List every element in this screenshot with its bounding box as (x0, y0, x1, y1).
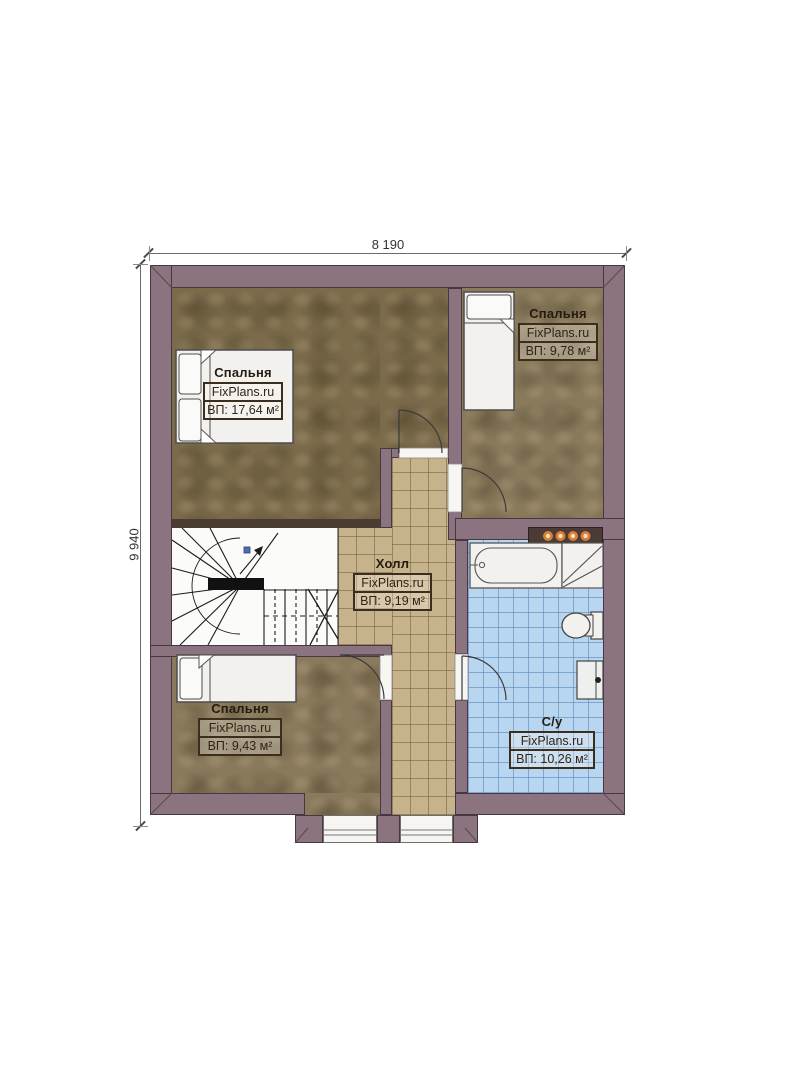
wall-bottom-left (150, 793, 305, 815)
room-info-box: FixPlans.ru ВП: 9,78 м² (518, 323, 598, 361)
bedroom-1-floor-ext (380, 288, 448, 448)
wall-hall-left-lower (380, 700, 392, 815)
room-label-bedroom-1: Спальня FixPlans.ru ВП: 17,64 м² (203, 365, 283, 420)
wall-left (150, 265, 172, 815)
dim-top-ext-right (626, 246, 627, 261)
door-bathroom-opening (455, 654, 468, 700)
room-name: С/у (509, 714, 595, 729)
wall-bedroom1-stairs (172, 519, 380, 528)
door-bedroom3-opening (380, 655, 392, 700)
room-label-bathroom: С/у FixPlans.ru ВП: 10,26 м² (509, 714, 595, 769)
bay-window-right (400, 815, 453, 843)
room-info-box: FixPlans.ru ВП: 9,43 м² (198, 718, 282, 756)
wall-hall-left-upper (380, 448, 392, 528)
wall-top (150, 265, 625, 288)
brand-label: FixPlans.ru (205, 384, 281, 402)
room-info-box: FixPlans.ru ВП: 9,19 м² (353, 573, 432, 611)
bay-pier-right (453, 815, 478, 843)
wall-bottom-right (455, 793, 625, 815)
bay-pier-left (295, 815, 323, 843)
room-info-box: FixPlans.ru ВП: 17,64 м² (203, 382, 283, 420)
room-label-hall: Холл FixPlans.ru ВП: 9,19 м² (353, 556, 432, 611)
dim-left-ext-bottom (133, 826, 148, 827)
wall-stairs-bedroom3 (150, 645, 392, 657)
brand-label: FixPlans.ru (355, 575, 430, 593)
room-name: Спальня (198, 701, 282, 716)
wall-right (603, 265, 625, 815)
stairs-area (172, 528, 338, 645)
hall-floor-column (392, 448, 455, 815)
bay-window-left (323, 815, 377, 843)
room-area: ВП: 9,43 м² (200, 738, 280, 754)
bay-pier-middle (377, 815, 400, 843)
room-area: ВП: 9,19 м² (355, 593, 430, 609)
brand-label: FixPlans.ru (511, 733, 593, 751)
room-area: ВП: 17,64 м² (205, 402, 281, 418)
bathroom-lights-strip (528, 527, 603, 545)
room-name: Спальня (518, 306, 598, 321)
dim-left-ext-top (133, 264, 148, 265)
room-info-box: FixPlans.ru ВП: 10,26 м² (509, 731, 595, 769)
room-name: Спальня (203, 365, 283, 380)
floor-plan-page: { "dimensions": { "width_label": "8 190"… (0, 0, 792, 1080)
room-area: ВП: 10,26 м² (511, 751, 593, 767)
room-area: ВП: 9,78 м² (520, 343, 596, 359)
room-label-bedroom-2: Спальня FixPlans.ru ВП: 9,78 м² (518, 306, 598, 361)
brand-label: FixPlans.ru (520, 325, 596, 343)
wall-bathroom-left-upper (455, 540, 468, 654)
dim-top-label: 8 190 (358, 237, 418, 252)
bedroom-3-floor-bay (305, 793, 380, 815)
brand-label: FixPlans.ru (200, 720, 280, 738)
room-name: Холл (353, 556, 432, 571)
wall-bathroom-left-lower (455, 700, 468, 793)
room-label-bedroom-3: Спальня FixPlans.ru ВП: 9,43 м² (198, 701, 282, 756)
dim-top-line (148, 253, 627, 254)
wall-between-bedrooms (448, 288, 462, 540)
dim-top-ext-left (149, 246, 150, 261)
dim-left-label: 9 940 (127, 520, 142, 570)
